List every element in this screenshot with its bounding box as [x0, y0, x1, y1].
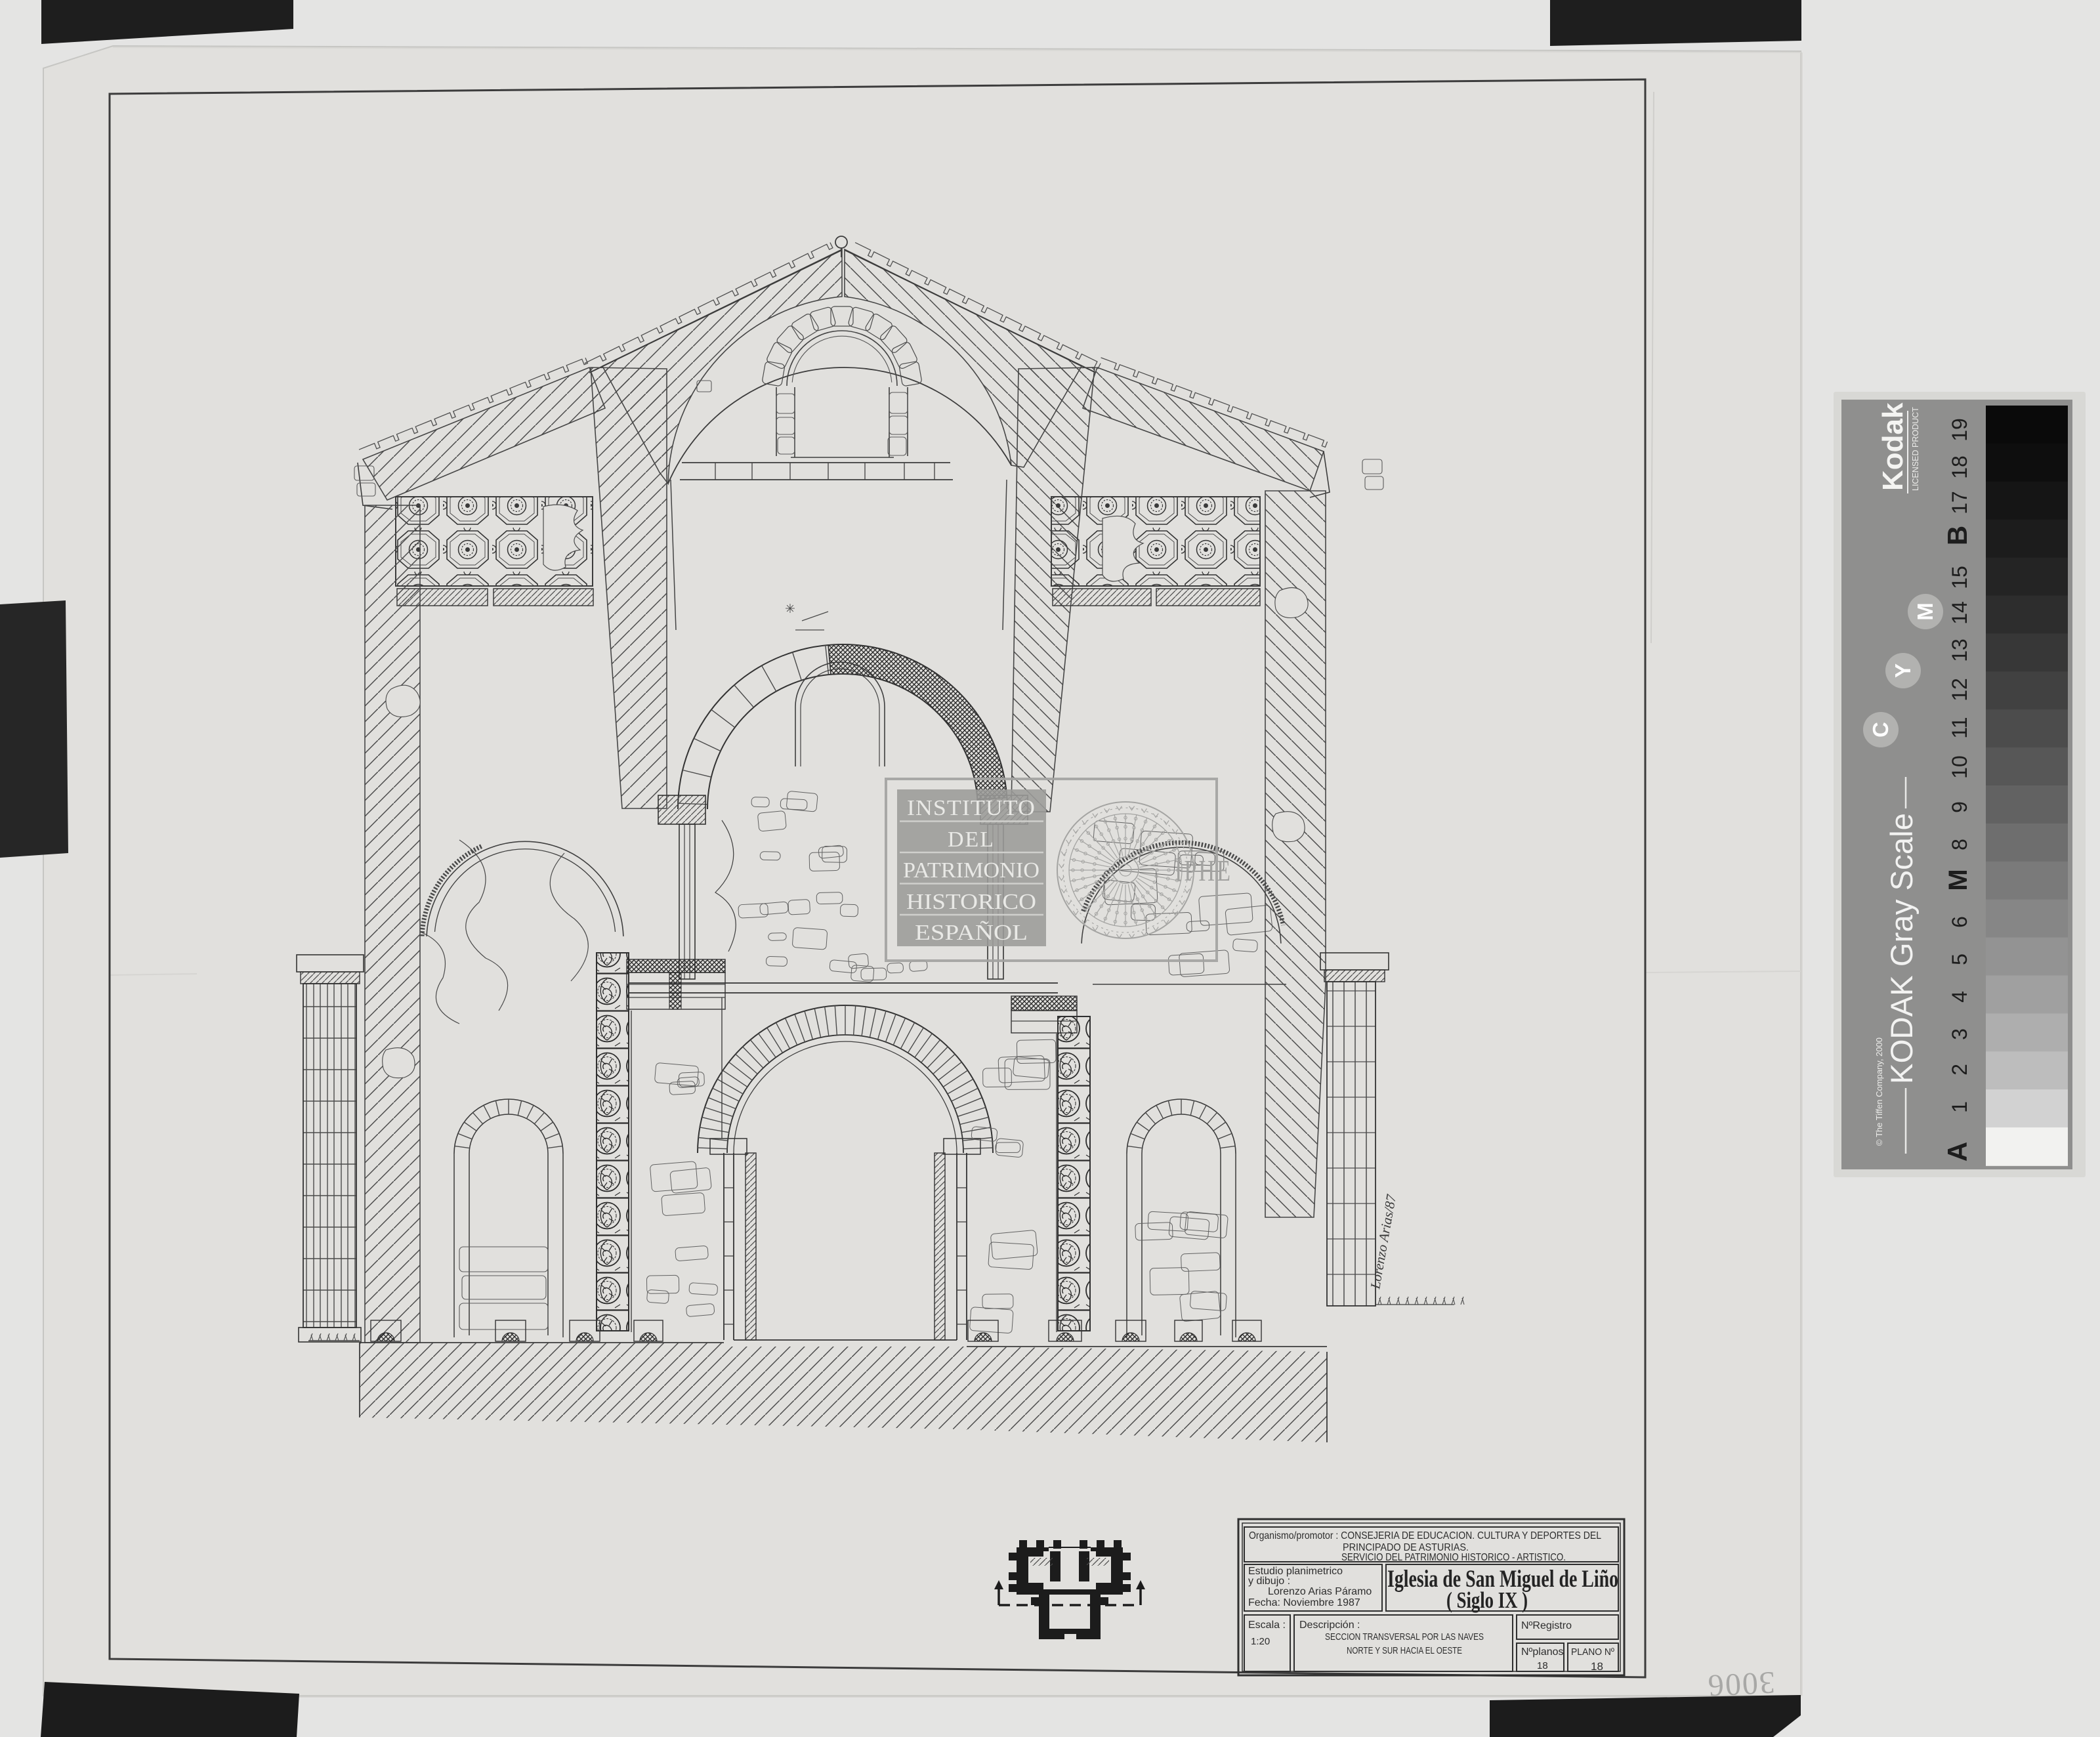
svg-text:HISTORICO: HISTORICO: [906, 890, 1036, 914]
svg-text:5: 5: [1948, 953, 1971, 965]
svg-text:12: 12: [1948, 678, 1971, 701]
svg-text:Descripción :: Descripción :: [1299, 1620, 1360, 1631]
svg-text:Escala :: Escala :: [1248, 1620, 1286, 1631]
svg-text:11: 11: [1948, 717, 1971, 738]
svg-text:IPHE: IPHE: [1175, 854, 1232, 887]
svg-text:10: 10: [1948, 755, 1971, 779]
svg-text:LICENSED PRODUCT: LICENSED PRODUCT: [1911, 407, 1920, 491]
svg-text:4: 4: [1948, 991, 1971, 1003]
svg-text:INSTITUTO: INSTITUTO: [907, 796, 1036, 820]
svg-text:KODAK Gray Scale: KODAK Gray Scale: [1884, 813, 1919, 1084]
svg-text:NORTE Y SUR HACIA EL OESTE: NORTE Y SUR HACIA EL OESTE: [1347, 1645, 1462, 1656]
svg-text:✳: ✳: [785, 602, 795, 616]
svg-text:18: 18: [1591, 1660, 1603, 1673]
svg-text:3: 3: [1948, 1028, 1971, 1040]
svg-text:19: 19: [1948, 418, 1971, 442]
svg-text:6: 6: [1948, 916, 1971, 928]
svg-text:Organismo/promotor : CONSEJERI: Organismo/promotor : CONSEJERIA DE EDUCA…: [1249, 1530, 1601, 1541]
svg-text:NºRegistro: NºRegistro: [1521, 1620, 1572, 1631]
svg-text:( Siglo IX ): ( Siglo IX ): [1446, 1587, 1528, 1613]
svg-text:M: M: [1913, 602, 1937, 621]
svg-text:Fecha: Noviembre 1987: Fecha: Noviembre 1987: [1248, 1597, 1360, 1608]
svg-text:Kodak: Kodak: [1877, 402, 1909, 491]
svg-text:Y: Y: [1891, 663, 1915, 678]
svg-text:2: 2: [1948, 1064, 1971, 1076]
svg-text:© The Tiffen Company, 2000: © The Tiffen Company, 2000: [1874, 1037, 1884, 1146]
svg-text:ESPAÑOL: ESPAÑOL: [915, 921, 1028, 945]
svg-text:PLANO Nº: PLANO Nº: [1571, 1646, 1614, 1658]
svg-text:M: M: [1944, 869, 1973, 890]
svg-text:1: 1: [1948, 1101, 1971, 1113]
svg-text:B: B: [1942, 526, 1973, 545]
svg-text:A: A: [1942, 1142, 1973, 1161]
svg-text:8: 8: [1948, 839, 1971, 850]
svg-text:18: 18: [1948, 455, 1971, 479]
svg-text:14: 14: [1948, 601, 1971, 625]
svg-text:9: 9: [1948, 801, 1971, 813]
svg-text:13: 13: [1948, 638, 1971, 662]
svg-text:DEL: DEL: [948, 827, 995, 852]
svg-text:SECCION TRANSVERSAL POR LAS: SECCION TRANSVERSAL POR LAS NAVES: [1325, 1631, 1484, 1643]
svg-text:Nºplanos: Nºplanos: [1521, 1646, 1564, 1658]
svg-text:PATRIMONIO: PATRIMONIO: [903, 858, 1039, 883]
svg-text:SERVICIO DEL PATRIMONIO HIS: SERVICIO DEL PATRIMONIO HISTORICO - ARTI…: [1341, 1552, 1566, 1563]
svg-text:y dibujo :: y dibujo :: [1248, 1576, 1290, 1587]
svg-text:3006: 3006: [1706, 1665, 1776, 1703]
svg-text:15: 15: [1948, 566, 1971, 589]
svg-text:C: C: [1868, 722, 1893, 738]
svg-text:1:20: 1:20: [1251, 1636, 1270, 1647]
svg-text:17: 17: [1948, 491, 1971, 514]
svg-text:Lorenzo Arias Páramo: Lorenzo Arias Páramo: [1268, 1586, 1372, 1597]
svg-text:18: 18: [1537, 1660, 1548, 1671]
